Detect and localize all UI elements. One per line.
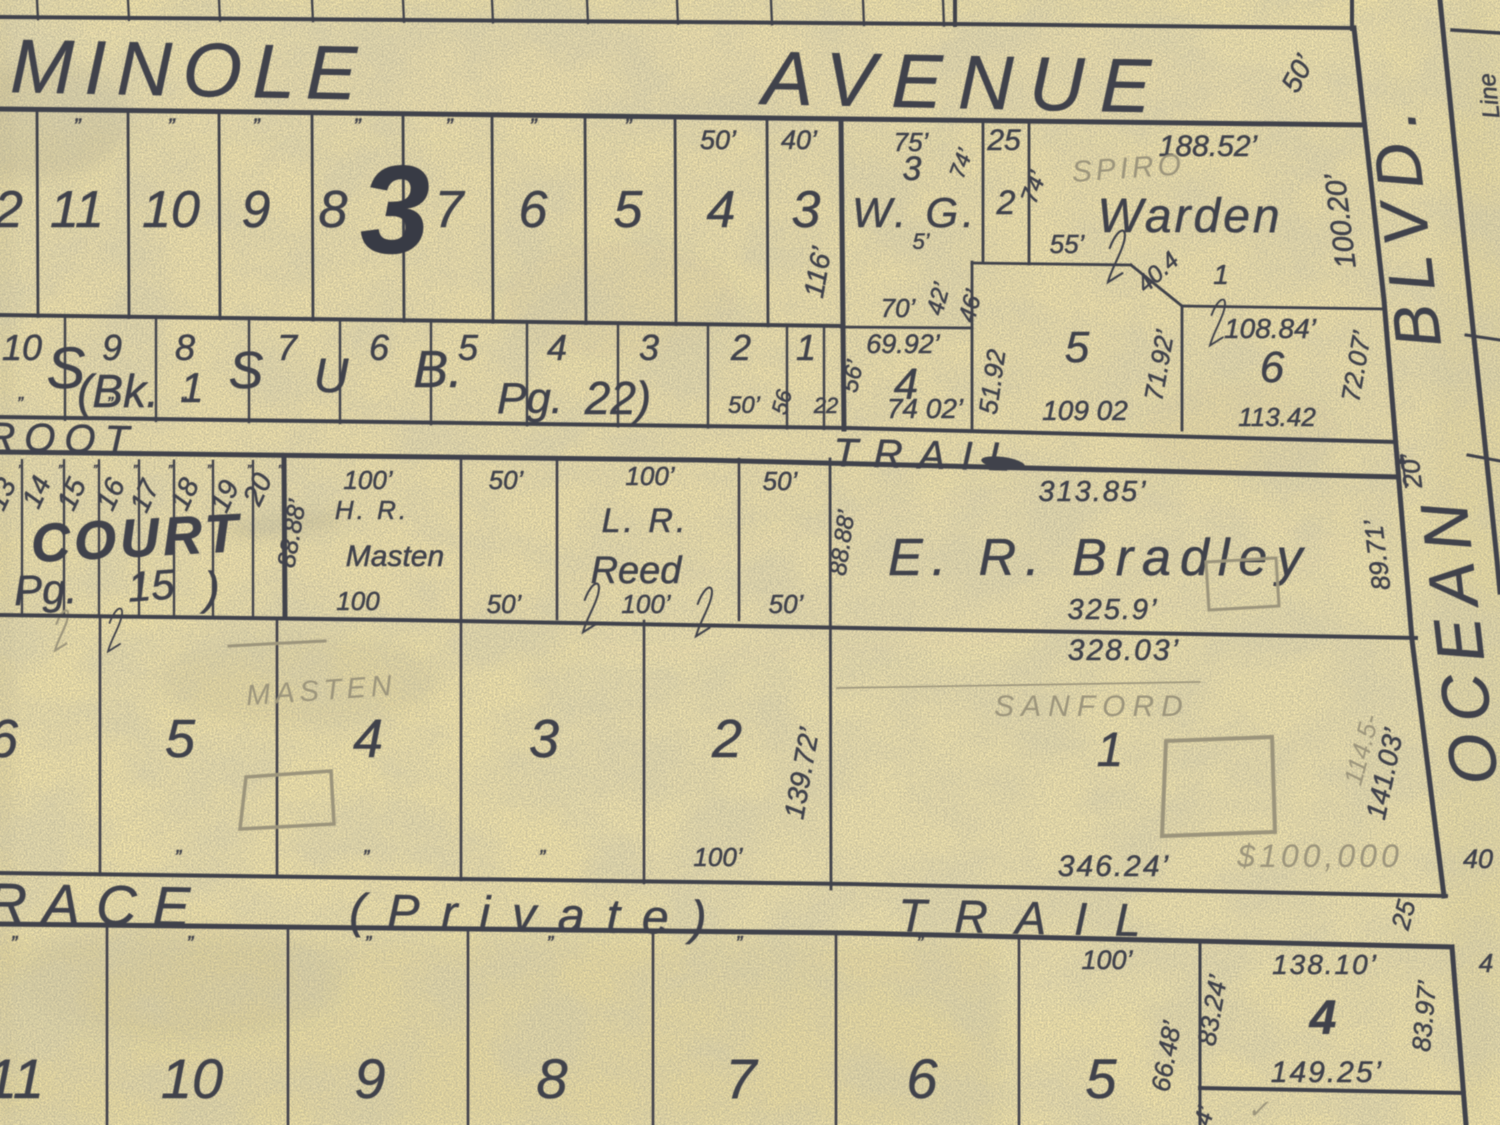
svg-text:50’: 50’ [728, 392, 761, 419]
svg-text:3: 3 [360, 141, 430, 280]
svg-text:6: 6 [1260, 343, 1285, 392]
svg-text:5: 5 [165, 709, 196, 769]
svg-text:ROOT: ROOT [0, 415, 138, 463]
svg-text:100’: 100’ [693, 842, 743, 872]
svg-text:3: 3 [792, 181, 821, 239]
svg-text:4: 4 [1479, 948, 1493, 978]
svg-text:(Private): (Private) [349, 885, 729, 946]
svg-text:25: 25 [986, 124, 1021, 157]
svg-text:70’: 70’ [881, 293, 917, 323]
svg-text:1: 1 [1097, 724, 1124, 777]
svg-text:108.84’: 108.84’ [1224, 313, 1317, 344]
svg-text:6: 6 [519, 181, 548, 239]
svg-text:”: ” [133, 462, 138, 477]
svg-text:”: ” [107, 394, 114, 414]
svg-text:6: 6 [906, 1047, 938, 1110]
svg-text:”: ” [93, 462, 98, 477]
svg-text:100’: 100’ [625, 461, 675, 491]
svg-text:4: 4 [707, 181, 736, 239]
svg-text:100’: 100’ [1081, 945, 1133, 975]
svg-text:2: 2 [711, 709, 742, 769]
svg-text:AVENUE: AVENUE [758, 36, 1168, 130]
svg-text:”: ” [247, 462, 252, 477]
svg-text:10: 10 [2, 327, 42, 368]
svg-text:4: 4 [353, 709, 383, 769]
svg-text:113.42: 113.42 [1238, 402, 1316, 432]
svg-text:Masten: Masten [346, 540, 444, 573]
svg-text:8: 8 [536, 1047, 567, 1110]
svg-text:100: 100 [336, 586, 380, 616]
svg-text:346.24’: 346.24’ [1058, 850, 1170, 883]
svg-text:4: 4 [547, 327, 567, 368]
svg-text:✓: ✓ [1247, 1094, 1269, 1124]
svg-text:7: 7 [435, 181, 466, 239]
svg-text:$100,000: $100,000 [1236, 838, 1402, 874]
svg-text:L. R.: L. R. [602, 502, 689, 540]
svg-text:B.: B. [413, 341, 462, 399]
svg-text:(Bk.: (Bk. [77, 365, 159, 417]
svg-text:69.92’: 69.92’ [866, 329, 941, 359]
svg-text:9: 9 [102, 327, 122, 368]
svg-text:RACE: RACE [0, 871, 207, 939]
svg-text:”: ” [17, 394, 24, 414]
svg-text:”: ” [180, 394, 187, 414]
svg-text:S: S [229, 342, 264, 400]
svg-text:Reed: Reed [591, 550, 684, 592]
svg-text:”: ” [58, 462, 63, 477]
svg-text:4: 4 [1309, 992, 1337, 1045]
svg-text:40’: 40’ [781, 125, 818, 155]
svg-text:1: 1 [796, 327, 816, 368]
svg-text:10: 10 [142, 181, 200, 239]
svg-text:149.25’: 149.25’ [1271, 1056, 1383, 1089]
svg-text:2: 2 [730, 327, 751, 368]
svg-text:50’: 50’ [489, 465, 525, 495]
svg-text:U: U [314, 350, 349, 403]
svg-text:1: 1 [1213, 259, 1229, 290]
svg-text:109 02: 109 02 [1042, 395, 1128, 426]
svg-text:12: 12 [0, 181, 23, 239]
svg-text:5’: 5’ [912, 229, 930, 254]
svg-text:328.03’: 328.03’ [1068, 634, 1180, 667]
svg-text:8: 8 [175, 327, 195, 368]
svg-text:6: 6 [0, 709, 19, 769]
svg-text:E. R. Bradley: E. R. Bradley [888, 529, 1311, 587]
svg-text:8: 8 [319, 181, 348, 239]
svg-text:9: 9 [242, 181, 271, 239]
svg-text:22: 22 [813, 393, 838, 418]
svg-text:”: ” [207, 462, 212, 477]
svg-text:5: 5 [1085, 1047, 1117, 1110]
svg-text:MINOLE: MINOLE [10, 24, 369, 116]
svg-text:3: 3 [529, 709, 559, 769]
svg-text:11: 11 [50, 181, 104, 239]
svg-text:H. R.: H. R. [335, 495, 409, 525]
svg-text:50’: 50’ [487, 589, 523, 619]
svg-text:138.10’: 138.10’ [1272, 949, 1378, 980]
svg-text:74 02’: 74 02’ [887, 393, 964, 424]
svg-text:100’: 100’ [621, 589, 671, 619]
svg-text:50’: 50’ [700, 125, 737, 155]
svg-text:9: 9 [354, 1047, 385, 1110]
svg-text:7: 7 [725, 1047, 758, 1110]
svg-text:75’: 75’ [894, 127, 930, 157]
svg-text:40: 40 [1463, 844, 1493, 874]
svg-text:5: 5 [1065, 323, 1090, 372]
svg-text:325.9’: 325.9’ [1067, 594, 1158, 626]
svg-text:Pg.: Pg. [497, 374, 563, 423]
svg-text:15: 15 [126, 560, 177, 610]
svg-text:11: 11 [0, 1047, 44, 1110]
svg-text:100’: 100’ [343, 465, 393, 495]
svg-text:Pg.: Pg. [13, 565, 78, 614]
svg-text:TRAIL: TRAIL [833, 431, 1027, 480]
svg-text:7: 7 [277, 327, 299, 368]
svg-text:2: 2 [996, 184, 1016, 222]
svg-text:SANFORD: SANFORD [994, 690, 1190, 723]
svg-text:5: 5 [614, 181, 644, 239]
svg-text:TRAIL: TRAIL [898, 889, 1169, 947]
svg-text:50’: 50’ [763, 466, 799, 496]
svg-text:22): 22) [584, 372, 651, 424]
svg-text:”: ” [18, 462, 23, 477]
svg-text:Line: Line [1474, 72, 1500, 120]
svg-text:50’: 50’ [769, 589, 805, 619]
svg-text:6: 6 [369, 327, 390, 368]
svg-text:”: ” [168, 462, 173, 477]
svg-text:55’: 55’ [1050, 229, 1086, 259]
svg-text:83.97’: 83.97’ [1406, 978, 1442, 1052]
svg-text:313.85’: 313.85’ [1038, 476, 1147, 508]
svg-text:10: 10 [161, 1047, 223, 1110]
svg-text:3: 3 [639, 327, 659, 368]
svg-text:”: ” [278, 462, 283, 477]
